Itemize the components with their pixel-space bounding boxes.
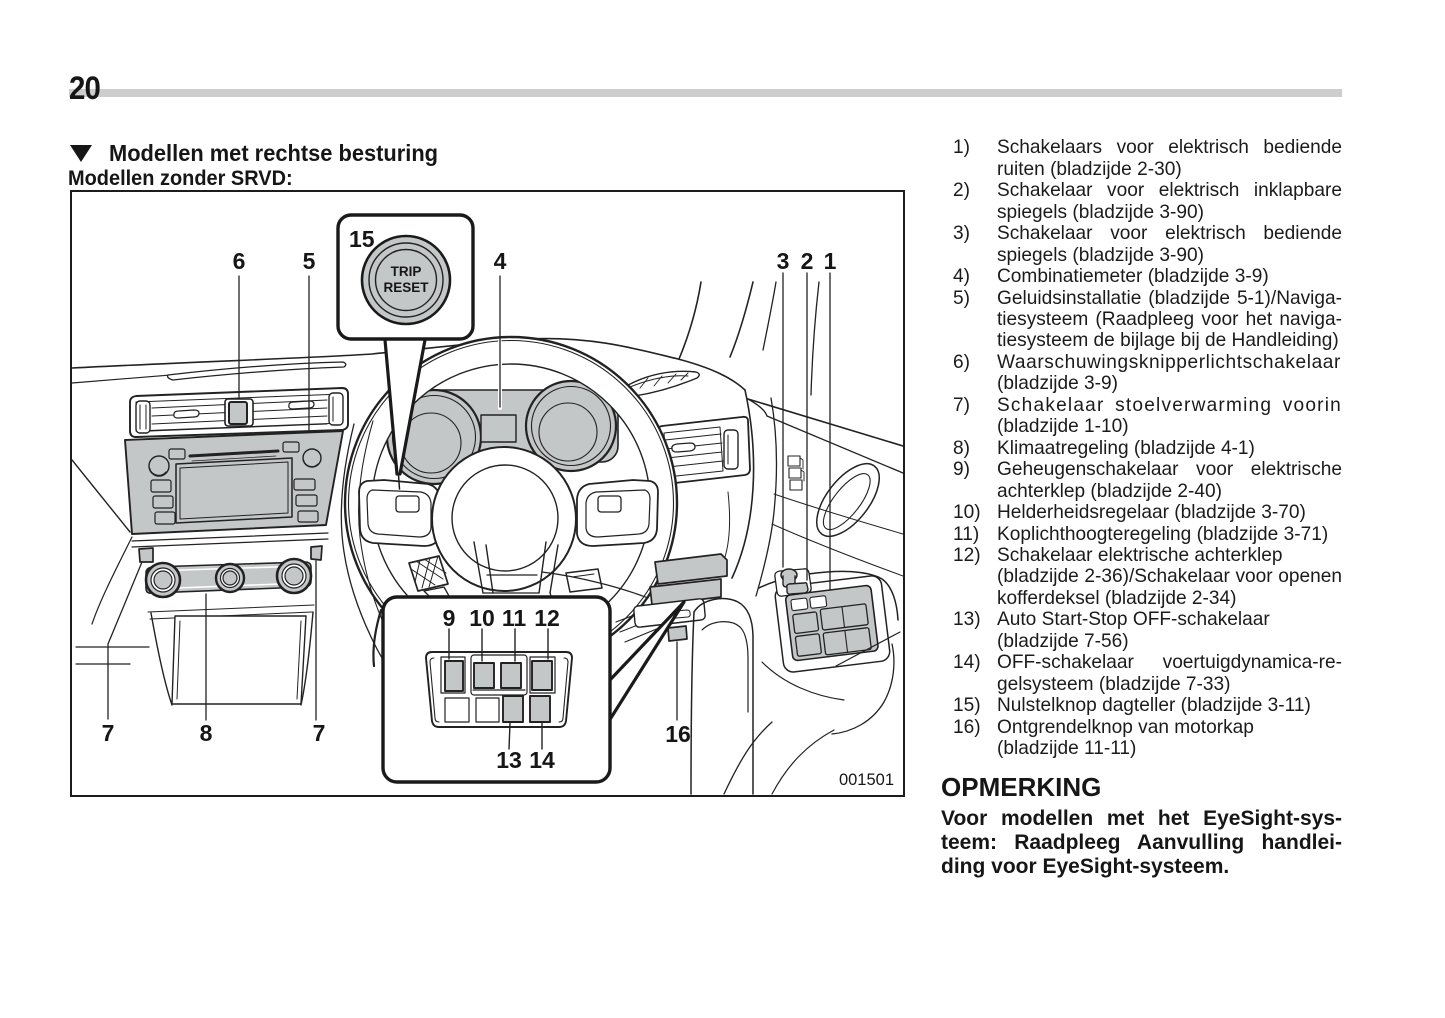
svg-text:7: 7 [313, 720, 326, 746]
svg-text:RESET: RESET [383, 280, 429, 295]
svg-text:001501: 001501 [839, 771, 894, 789]
svg-text:6: 6 [233, 248, 246, 274]
svg-text:14: 14 [529, 747, 555, 773]
svg-text:12: 12 [534, 605, 560, 631]
svg-text:1: 1 [824, 248, 837, 274]
svg-text:11: 11 [502, 605, 527, 631]
svg-text:TRIP: TRIP [391, 264, 422, 279]
svg-text:5: 5 [303, 248, 316, 274]
svg-text:16: 16 [665, 721, 691, 747]
svg-text:9: 9 [443, 605, 456, 631]
svg-text:13: 13 [496, 747, 522, 773]
svg-text:4: 4 [494, 248, 507, 274]
svg-text:8: 8 [200, 720, 213, 746]
svg-text:10: 10 [469, 605, 495, 631]
svg-text:7: 7 [102, 720, 115, 746]
svg-text:2: 2 [801, 248, 814, 274]
svg-text:15: 15 [349, 226, 375, 252]
svg-text:3: 3 [777, 248, 790, 274]
